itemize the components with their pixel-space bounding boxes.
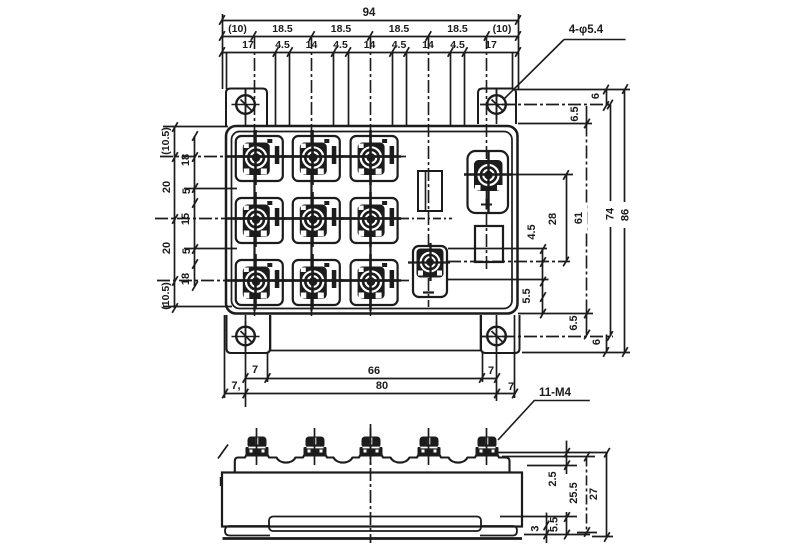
svg-text:7: 7 xyxy=(508,381,514,393)
svg-text:4.5: 4.5 xyxy=(450,39,465,51)
svg-text:4-φ5.4: 4-φ5.4 xyxy=(569,24,604,36)
svg-text:6.5: 6.5 xyxy=(569,106,581,121)
svg-text:17: 17 xyxy=(242,39,254,51)
svg-text:66: 66 xyxy=(368,365,380,377)
svg-text:6: 6 xyxy=(591,339,603,345)
svg-text:11-M4: 11-M4 xyxy=(539,387,572,399)
svg-text:86: 86 xyxy=(620,209,632,221)
svg-text:20: 20 xyxy=(161,242,173,254)
svg-text:18.5: 18.5 xyxy=(389,23,410,35)
svg-text:18: 18 xyxy=(180,273,192,285)
svg-text:27: 27 xyxy=(588,488,600,500)
svg-text:20: 20 xyxy=(161,181,173,193)
svg-text:74: 74 xyxy=(605,207,617,220)
svg-text:(10): (10) xyxy=(493,23,512,35)
svg-text:94: 94 xyxy=(363,7,376,19)
svg-text:6: 6 xyxy=(590,93,602,99)
svg-text:7: 7 xyxy=(488,365,494,377)
svg-text:7: 7 xyxy=(252,364,258,376)
svg-text:5.5: 5.5 xyxy=(549,517,561,532)
svg-text:28: 28 xyxy=(547,213,559,225)
svg-text:18.5: 18.5 xyxy=(331,23,352,35)
svg-text:3: 3 xyxy=(530,525,542,531)
svg-text:6.5: 6.5 xyxy=(568,315,580,330)
svg-text:25.5: 25.5 xyxy=(568,482,580,503)
svg-text:18.5: 18.5 xyxy=(447,23,468,35)
svg-text:(10.5): (10.5) xyxy=(160,127,172,154)
svg-text:61: 61 xyxy=(573,212,585,224)
svg-text:4.5: 4.5 xyxy=(392,39,407,51)
svg-text:4.5: 4.5 xyxy=(275,39,290,51)
svg-text:4.5: 4.5 xyxy=(526,224,538,239)
svg-text:5.5: 5.5 xyxy=(521,288,533,303)
svg-text:14: 14 xyxy=(364,39,376,51)
svg-text:4.5: 4.5 xyxy=(333,39,348,51)
svg-text:(10.5): (10.5) xyxy=(160,282,172,309)
svg-text:18.5: 18.5 xyxy=(272,23,293,35)
svg-text:7,: 7, xyxy=(231,380,240,392)
svg-text:2.5: 2.5 xyxy=(547,471,559,486)
svg-text:(10): (10) xyxy=(228,23,247,35)
svg-text:80: 80 xyxy=(376,380,388,392)
